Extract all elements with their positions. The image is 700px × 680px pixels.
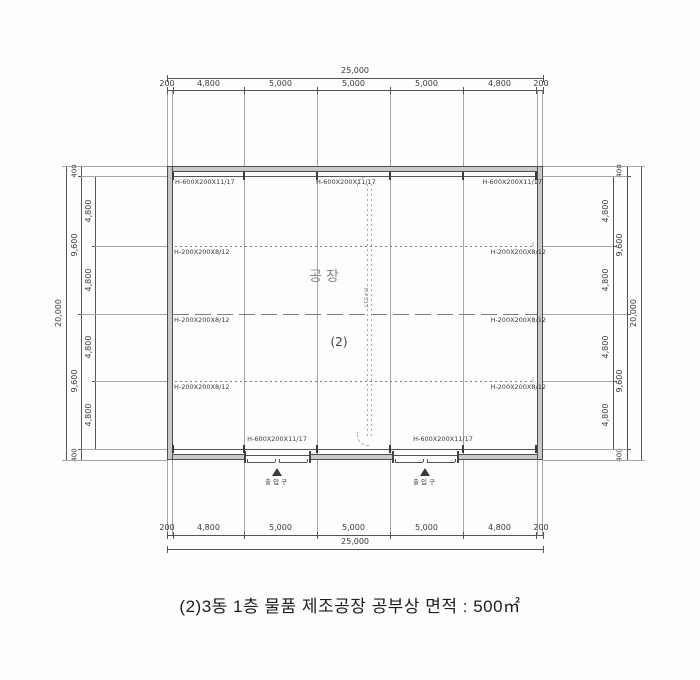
dimension-tick — [244, 532, 245, 539]
building-wall — [167, 166, 543, 172]
building-wall — [167, 454, 543, 460]
dimension-label: 4,800 — [85, 336, 93, 359]
beam-label: H-600X200X11/17 — [316, 179, 376, 186]
dimension-label: 4,800 — [197, 80, 220, 88]
grid-line — [317, 90, 318, 535]
extension-line — [543, 166, 645, 167]
dimension-tick — [167, 546, 168, 553]
girt-label: H-200X200X8/12 — [174, 249, 230, 256]
grid-line — [463, 90, 464, 535]
extension-line — [543, 460, 645, 461]
trench-hook — [357, 432, 369, 446]
door-leaf — [279, 462, 307, 463]
girt-label: H-200X200X8/12 — [174, 317, 230, 324]
girt-label: H-200X200X8/12 — [490, 249, 546, 256]
door-jamb — [309, 451, 311, 463]
door-leaf-hook — [279, 459, 280, 462]
entrance-triangle-icon — [420, 468, 430, 476]
column-mark — [462, 445, 464, 453]
extension-line — [543, 381, 613, 382]
dimension-label: 5,000 — [269, 524, 292, 532]
dimension-line — [167, 535, 543, 536]
dimension-label: 25,000 — [341, 538, 369, 546]
girt-label: H-200X200X8/12 — [490, 384, 546, 391]
dimension-label: 4,800 — [602, 404, 610, 427]
dimension-label: 200 — [159, 524, 174, 532]
girt-line — [173, 314, 537, 315]
door-leaf — [247, 462, 275, 463]
door-leaf-hook — [275, 459, 276, 462]
dimension-line — [95, 176, 96, 449]
extension-line — [543, 314, 627, 315]
column-mark — [316, 445, 318, 453]
trench-line — [367, 184, 368, 436]
door-jamb — [392, 451, 394, 463]
beam-line — [173, 176, 536, 177]
door-leaf-hook — [307, 459, 308, 462]
dimension-label: 9,600 — [616, 370, 624, 393]
dimension-tick — [173, 532, 174, 539]
door-leaf-hook — [455, 459, 456, 462]
extension-line — [62, 460, 167, 461]
drawing-area: )()(H=517H-600X200X11/17H-600X200X11/17H… — [0, 0, 700, 680]
door-leaf-hook — [427, 459, 428, 462]
dimension-tick — [543, 532, 544, 539]
dimension-label: 9,600 — [616, 233, 624, 256]
extension-line — [95, 381, 167, 382]
grid-line — [167, 90, 168, 167]
dimension-label: 5,000 — [342, 80, 365, 88]
room-label: 공장 — [309, 270, 343, 284]
dimension-label: 200 — [533, 80, 548, 88]
dimension-line — [66, 166, 67, 460]
caption: (2)3동 1층 물품 제조공장 공부상 면적 : 500㎡ — [179, 592, 520, 617]
dimension-tick — [317, 532, 318, 539]
dimension-label: 4,800 — [488, 80, 511, 88]
extension-line — [543, 176, 627, 177]
dimension-tick — [167, 532, 168, 539]
beam-label: H-600X200X11/17 — [175, 179, 235, 186]
column-mark — [172, 445, 174, 453]
girt-line — [175, 381, 535, 382]
dimension-label: 4,800 — [602, 336, 610, 359]
extension-line — [543, 246, 613, 247]
column-mark — [243, 172, 245, 180]
column-mark — [462, 172, 464, 180]
dimension-tick — [317, 87, 318, 94]
dimension-label: 4,800 — [85, 404, 93, 427]
door-leaf-hook — [395, 459, 396, 462]
dimension-label: 9,600 — [71, 233, 79, 256]
girt-line — [175, 246, 535, 247]
dimension-label: 4,800 — [488, 524, 511, 532]
door-jamb — [244, 451, 246, 463]
door-head-line — [392, 455, 458, 456]
door-jamb — [457, 451, 459, 463]
dimension-tick — [543, 546, 544, 553]
grid-line — [390, 90, 391, 535]
dimension-label: 4,800 — [602, 200, 610, 223]
door-leaf — [395, 462, 423, 463]
trench-note: H=517 — [362, 288, 368, 308]
door-leaf — [427, 462, 455, 463]
dimension-label: 4,800 — [197, 524, 220, 532]
extension-line — [81, 449, 167, 450]
girt-label: H-200X200X8/12 — [490, 317, 546, 324]
extension-line — [62, 166, 167, 167]
dimension-tick — [390, 87, 391, 94]
entrance-label: 출입구 — [413, 479, 437, 486]
extension-line — [81, 176, 167, 177]
entrance-triangle-icon — [272, 468, 282, 476]
trench-line — [371, 184, 372, 436]
dimension-label: 5,000 — [415, 524, 438, 532]
grid-line — [537, 90, 538, 167]
column-mark — [172, 172, 174, 180]
door-leaf-hook — [423, 459, 424, 462]
beam-label: H-600X200X11/17 — [413, 436, 473, 443]
unit-number: (2) — [331, 336, 348, 348]
door-head-line — [244, 455, 310, 456]
dimension-tick — [244, 87, 245, 94]
grid-line — [172, 90, 173, 167]
entrance-label: 출입구 — [265, 479, 289, 486]
column-mark — [535, 445, 537, 453]
dimension-label: 200 — [533, 524, 548, 532]
dimension-label: 4,800 — [602, 268, 610, 291]
grid-line — [542, 90, 543, 167]
dimension-line — [641, 166, 642, 460]
dimension-label: 20,000 — [630, 299, 638, 327]
extension-line — [95, 246, 167, 247]
beam-label: H-600X200X11/17 — [482, 179, 542, 186]
dimension-label: 25,000 — [341, 67, 369, 75]
column-mark — [389, 445, 391, 453]
dimension-label: 5,000 — [269, 80, 292, 88]
grid-line — [244, 90, 245, 535]
door-leaf-hook — [247, 459, 248, 462]
building-wall — [167, 166, 173, 460]
dimension-label: 200 — [159, 80, 174, 88]
floor-plan-sheet: )()(H=517H-600X200X11/17H-600X200X11/17H… — [0, 0, 700, 680]
dimension-tick — [536, 532, 537, 539]
dimension-label: 5,000 — [415, 80, 438, 88]
dimension-tick — [463, 532, 464, 539]
girt-label: H-200X200X8/12 — [174, 384, 230, 391]
dimension-tick — [463, 87, 464, 94]
dimension-line — [167, 90, 543, 91]
extension-line — [81, 314, 167, 315]
dimension-tick — [390, 532, 391, 539]
extension-line — [543, 449, 627, 450]
dimension-label: 5,000 — [342, 524, 365, 532]
beam-label: H-600X200X11/17 — [247, 436, 307, 443]
beam-line — [173, 449, 536, 450]
dimension-label: 20,000 — [55, 299, 63, 327]
dimension-label: 4,800 — [85, 268, 93, 291]
dimension-label: 4,800 — [85, 200, 93, 223]
dimension-line — [167, 549, 543, 550]
dimension-label: 9,600 — [71, 370, 79, 393]
column-mark — [389, 172, 391, 180]
dimension-line — [613, 176, 614, 449]
